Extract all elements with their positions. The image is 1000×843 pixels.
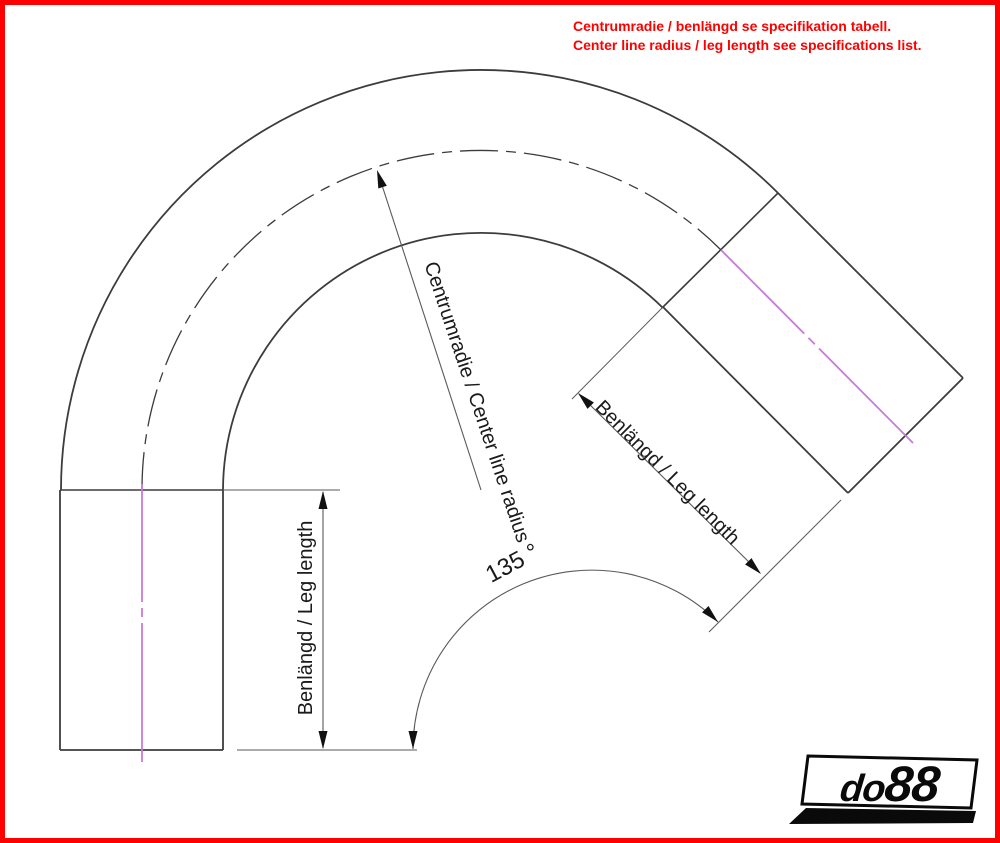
angle-arrow-left xyxy=(409,731,418,749)
center-line-radius-label: Centrumradie / Center line radius xyxy=(420,259,534,545)
left-dim-arrow-bottom xyxy=(319,731,328,749)
right-leg-dimension: Benlängd / Leg length xyxy=(572,307,841,632)
technical-drawing-page: Benlängd / Leg length Benlängd / Leg len… xyxy=(0,0,1000,843)
note-line-1: Centrumradie / benlängd se specifikation… xyxy=(573,18,891,34)
right-leg-outer-edge xyxy=(778,193,963,378)
note-line-2: Center line radius / leg length see spec… xyxy=(573,37,922,53)
outer-arc xyxy=(61,70,778,490)
elbow-drawing-canvas: Benlängd / Leg length Benlängd / Leg len… xyxy=(0,0,1000,843)
angle-arc xyxy=(413,570,718,749)
pipe-outline xyxy=(60,70,963,750)
angle-dimension: 135 ° xyxy=(409,538,719,749)
do88-logo: do88 xyxy=(789,756,977,824)
radius-dimension: Centrumradie / Center line radius xyxy=(377,170,534,545)
left-leg-length-label: Benlängd / Leg length xyxy=(295,521,317,716)
right-leg-length-label: Benlängd / Leg length xyxy=(591,396,744,549)
right-dim-extension-top xyxy=(572,307,663,399)
specification-note: Centrumradie / benlängd se specifikation… xyxy=(573,18,922,53)
left-leg-dimension: Benlängd / Leg length xyxy=(223,490,417,750)
angle-arrow-right xyxy=(702,606,718,622)
radius-dim-arrow xyxy=(377,170,387,189)
angle-value-label: 135 ° xyxy=(481,538,543,588)
center-lines xyxy=(142,150,913,762)
right-leg-center-line xyxy=(721,250,913,443)
right-leg-inner-edge xyxy=(663,307,848,493)
left-dim-arrow-top xyxy=(319,491,328,509)
